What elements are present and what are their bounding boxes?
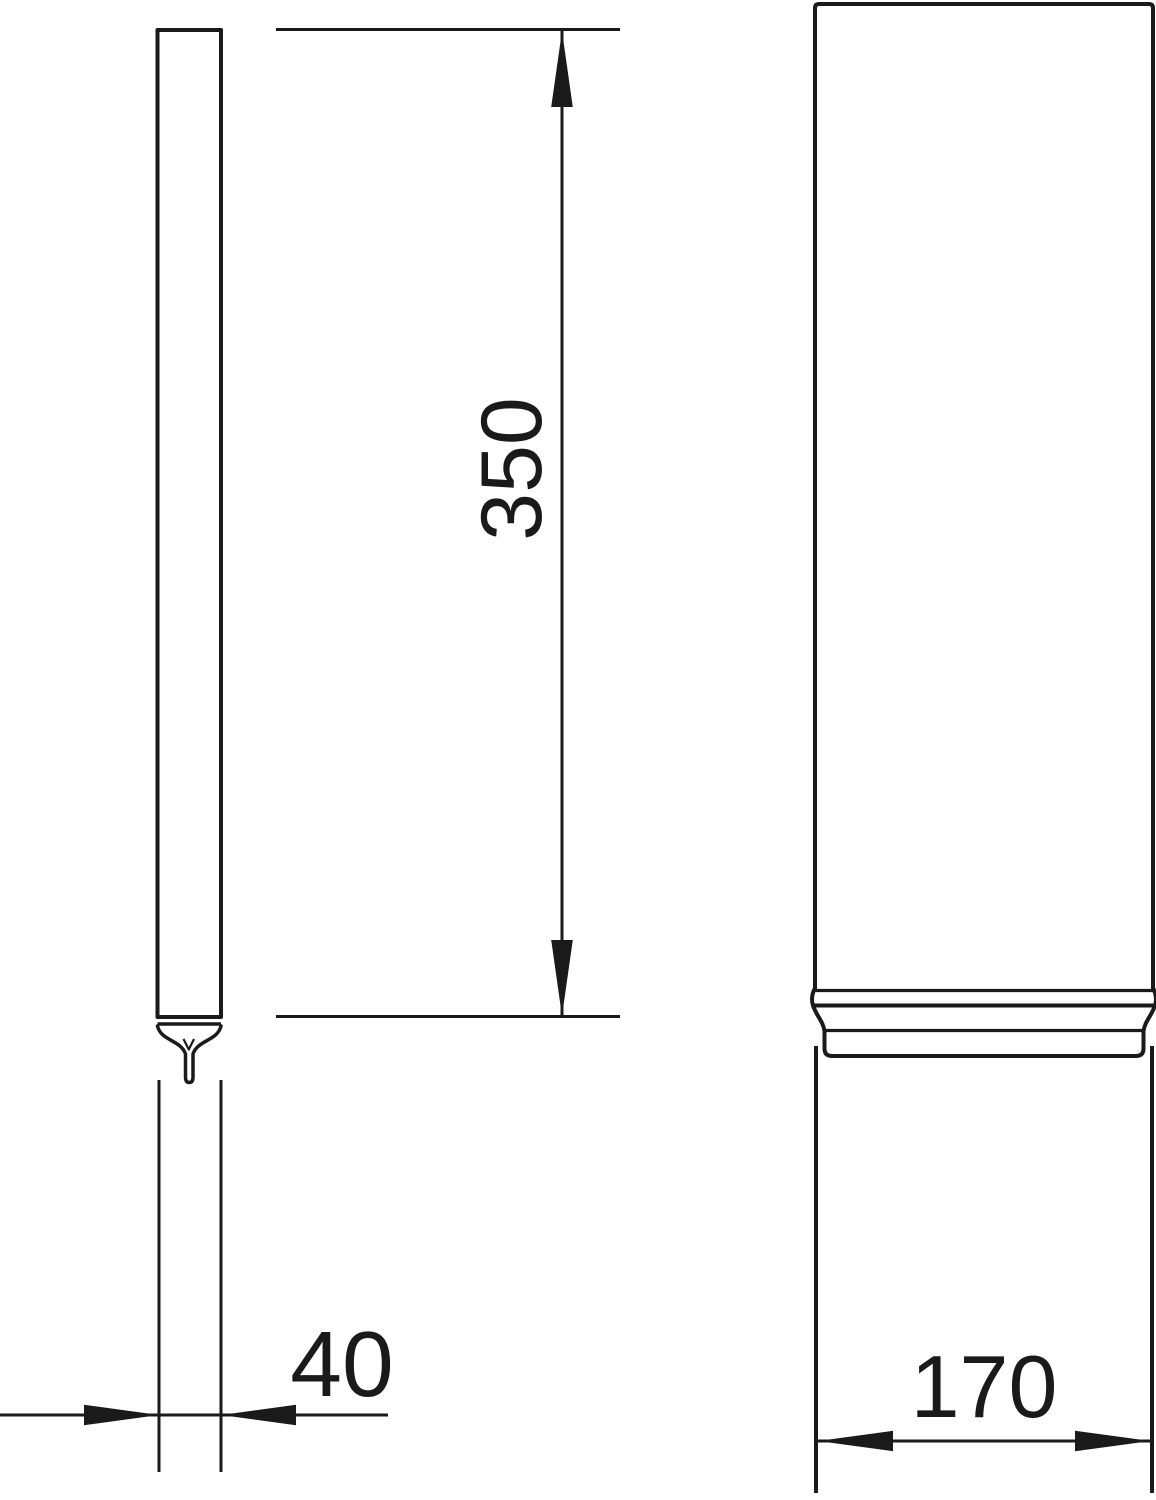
dimension-drawing: 350 40 170 bbox=[0, 0, 1156, 1500]
technical-drawing-canvas: 350 40 170 bbox=[0, 0, 1156, 1500]
length-dim-label: 350 bbox=[464, 397, 560, 541]
large-diameter-dim-label: 170 bbox=[911, 1337, 1058, 1436]
drawing-background bbox=[0, 0, 1156, 1500]
small-diameter-dim-label: 40 bbox=[290, 1312, 393, 1416]
